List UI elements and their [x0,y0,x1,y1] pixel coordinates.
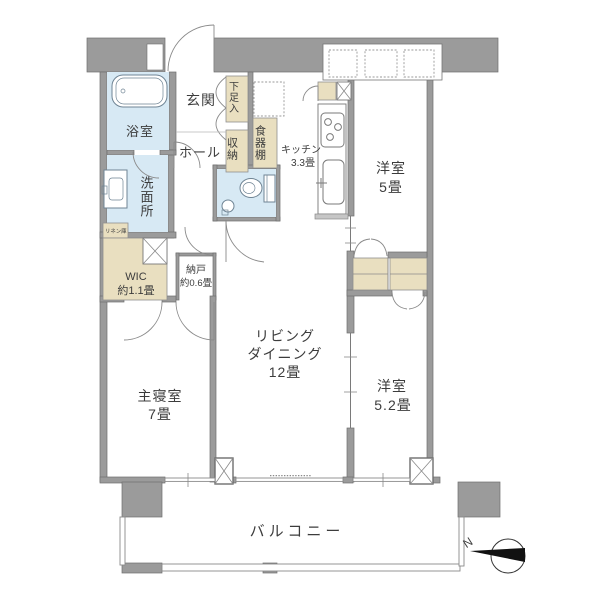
label-balcony: バルコニー [250,523,345,540]
pillar-left [215,458,233,484]
wall-bottom-c [433,477,440,483]
label-western52-2: 5.2畳 [374,397,411,413]
windows [165,473,410,487]
shoe-cabinet-door-1 [216,77,226,108]
label-bathroom: 浴室 [126,124,154,139]
toilet-door [185,227,213,255]
entrance-door [168,25,214,71]
compass-needle [470,548,525,562]
compass: N [460,534,525,573]
closet52-door-left [392,292,407,309]
label-nando-1: 納戸 [186,263,206,276]
wall-right-exterior [427,70,433,482]
bedroom-door [176,302,214,340]
label-shoe-cabinet: 下足入 [227,81,239,114]
balcony-block-bottom-left [122,563,162,573]
dashed-box-1 [329,50,357,77]
label-cupboard: 食器棚 [254,124,267,161]
pipe-space-kitchen [337,82,351,100]
label-master-1: 主寝室 [138,388,183,404]
counter-end-panel [315,214,348,219]
label-kitchen-1: キッチン [281,144,321,156]
wall-closet-bottom-l [347,290,392,296]
wall-w52-left-bottom [347,428,354,482]
window-western52 [353,478,410,481]
wall-kitchen-strip-left [248,72,253,168]
label-western52-1: 洋室 [377,378,407,394]
bathtub-icon [112,75,167,107]
wall-closet-top [388,252,427,258]
balcony-block-left [122,482,162,517]
refrigerator-space [254,82,284,116]
label-storage: 収納 [226,137,239,161]
vanity-sink-icon [102,170,127,208]
sliding-partition-western52 [344,333,357,428]
living-door [226,220,264,262]
kitchen-door [303,86,318,101]
balcony-block-right [458,482,500,517]
floor-plan: N 玄関 ホール 浴室 洗面所 リネン庫 下足入 収納 食器棚 キッチン 3.3… [0,0,600,600]
label-living-1: リビング [255,328,315,344]
window-bedroom [165,478,215,481]
rail-left [120,517,125,565]
label-entrance: 玄関 [186,92,216,108]
wall-bath-bottom-l [107,150,134,155]
wic-door [124,302,162,340]
wall-nando-right [213,253,216,300]
shoe-cabinet-door-2 [216,108,226,140]
kitchen-counter [315,104,348,219]
closet52-door-right [409,292,425,309]
label-living-3: 12畳 [269,364,302,380]
wall-washroom-hall [168,150,174,238]
label-nando-2: 約0.6畳 [180,277,213,289]
wall-w52-left-top [347,295,354,333]
label-wic-2: 約1.1畳 [117,283,154,297]
wall-toilet-left [213,165,217,221]
wall-nando-left [176,253,179,300]
closet5-door-left [354,239,370,256]
sliding-door-western5 [345,216,356,251]
window-living [236,478,343,481]
wall-notch [147,44,163,70]
label-washroom: 洗面所 [139,176,154,218]
wall-bottom-b [343,477,353,483]
kitchen-top-cabinet [318,82,336,100]
label-kitchen-2: 3.3畳 [291,157,315,169]
rail-bottom [162,564,460,571]
label-western5-2: 5畳 [379,179,403,195]
dashed-box-2 [365,50,397,77]
label-wic-1: WIC [125,271,146,283]
wall-toilet-bottom [213,217,280,221]
label-hall: ホール [179,145,221,160]
washer-space [143,238,167,264]
pillar-right [410,458,433,484]
dashed-box-3 [404,50,434,77]
label-western5-1: 洋室 [376,160,406,176]
wall-bath-entrance [169,72,176,155]
floor-plan-page: N 玄関 ホール 浴室 洗面所 リネン庫 下足入 収納 食器棚 キッチン 3.3… [0,0,600,600]
wall-bedroom-living [210,296,216,482]
closet5-door-right [371,239,387,256]
wall-toilet-right [276,165,280,221]
label-master-2: 7畳 [148,406,172,422]
top-dashed-boxes [329,50,434,77]
label-linen: リネン庫 [105,227,127,235]
label-living-2: ダイニング [248,346,323,362]
